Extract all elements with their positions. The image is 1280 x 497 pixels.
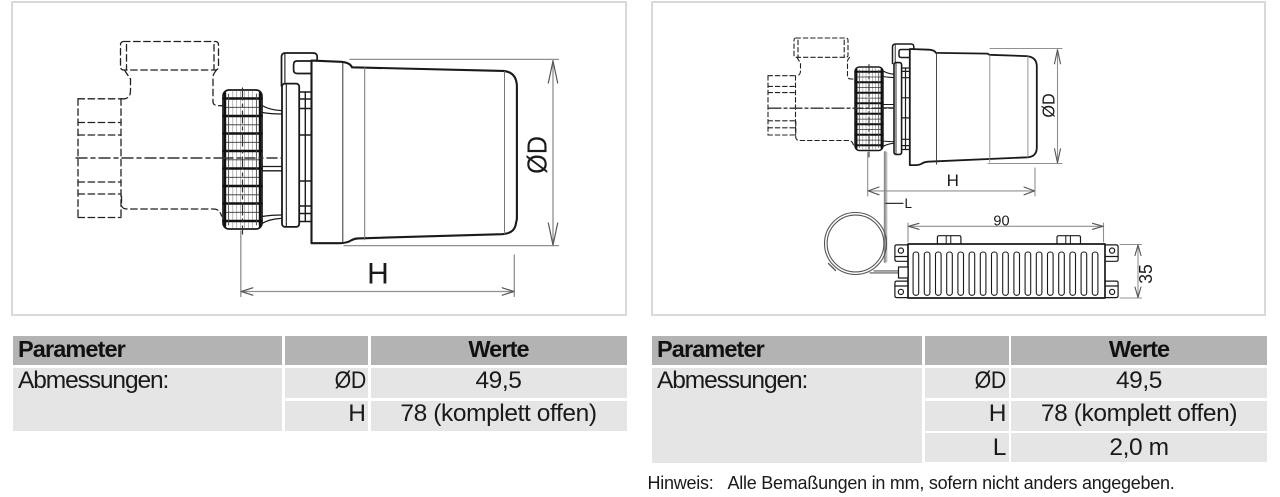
svg-text:H: H <box>367 258 389 291</box>
svg-text:L: L <box>905 196 913 211</box>
svg-text:ØD: ØD <box>521 136 553 174</box>
svg-text:90: 90 <box>993 213 1009 229</box>
svg-text:ØD: ØD <box>1039 93 1059 117</box>
svg-text:H: H <box>947 171 959 190</box>
svg-text:35: 35 <box>1136 264 1157 284</box>
